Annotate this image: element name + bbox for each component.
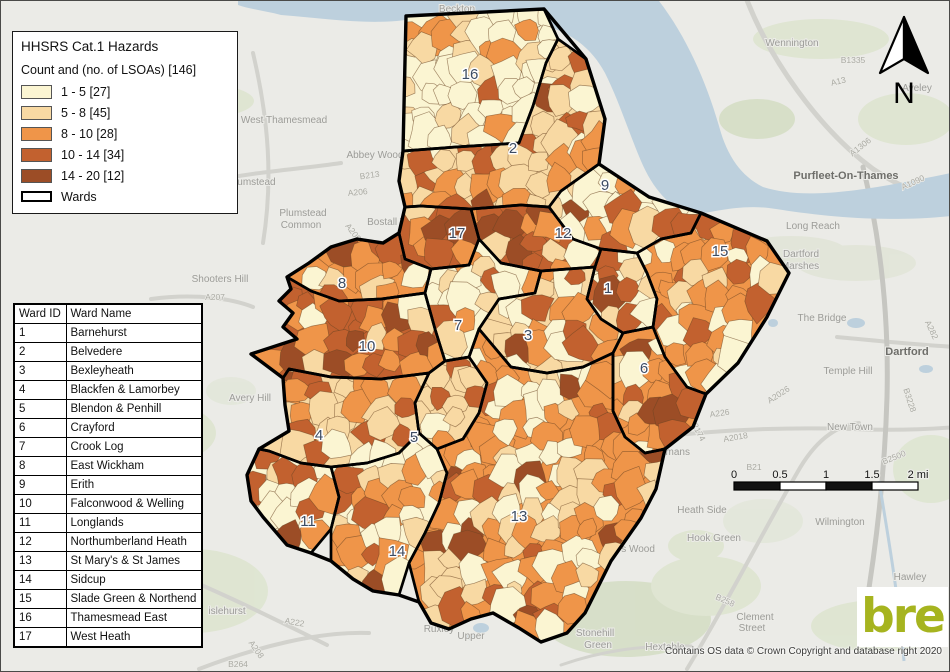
place-label: Abbey Wood — [346, 150, 403, 161]
lsoa-cell — [529, 152, 549, 172]
road-label: B1335 — [841, 55, 866, 65]
table-cell: Bexleyheath — [66, 362, 202, 381]
place-label: Common — [281, 220, 322, 231]
scale-bar-svg: 00.511.52 mi — [711, 467, 947, 497]
table-cell: Crayford — [66, 419, 202, 438]
table-header-cell: Ward ID — [14, 304, 66, 324]
scale-bar: 00.511.52 mi — [711, 467, 947, 497]
table-row: 17West Heath — [14, 628, 202, 648]
legend-swatch — [21, 127, 52, 141]
ward-number-label: 9 — [601, 177, 609, 194]
map-canvas: BecktonWenningtonAveleyWest ThamesmeadAb… — [0, 0, 950, 672]
ward-number-label: 7 — [454, 317, 462, 334]
legend-class-row: 1 - 5 [27] — [21, 81, 229, 102]
table-cell: Crook Log — [66, 438, 202, 457]
legend-swatch — [21, 85, 52, 99]
ward-number-label: 14 — [389, 543, 406, 560]
table-row: 10Falconwood & Welling — [14, 495, 202, 514]
table-cell: 11 — [14, 514, 66, 533]
place-label: Temple Hill — [824, 366, 873, 377]
table-row: 15Slade Green & Northend — [14, 590, 202, 609]
legend-class-label: 1 - 5 [27] — [61, 85, 110, 99]
table-row: 6Crayford — [14, 419, 202, 438]
legend-class-label: 8 - 10 [28] — [61, 127, 117, 141]
ward-number-label: 17 — [449, 225, 466, 242]
place-label: Wennington — [765, 38, 818, 49]
legend-class-row: 8 - 10 [28] — [21, 123, 229, 144]
table-row: 2Belvedere — [14, 343, 202, 362]
scale-bar-segment — [872, 482, 918, 490]
place-label: New Town — [827, 422, 873, 433]
place-label: The Bridge — [798, 313, 847, 324]
table-header-cell: Ward Name — [66, 304, 202, 324]
scale-bar-segment — [734, 482, 780, 490]
legend-wards-swatch — [21, 191, 52, 202]
table-cell: Barnehurst — [66, 324, 202, 343]
legend-class-row: 14 - 20 [12] — [21, 165, 229, 186]
table-row: 4Blackfen & Lamorbey — [14, 381, 202, 400]
table-cell: West Heath — [66, 628, 202, 648]
road-label: A207 — [205, 292, 225, 302]
ward-number-label: 6 — [640, 360, 648, 377]
ward-number-label: 13 — [511, 508, 528, 525]
table-row: 8East Wickham — [14, 457, 202, 476]
ward-number-label: 15 — [712, 243, 729, 260]
table-cell: East Wickham — [66, 457, 202, 476]
road-label: A206 — [347, 186, 368, 198]
bre-logo: bre — [857, 587, 948, 647]
table-cell: Blackfen & Lamorbey — [66, 381, 202, 400]
place-label: Dartford — [783, 249, 819, 260]
scale-bar-segment — [826, 482, 872, 490]
place-label: Hawley — [894, 572, 927, 583]
place-label: West Thamesmead — [241, 115, 327, 126]
ward-number-label: 1 — [604, 280, 612, 297]
table-cell: 10 — [14, 495, 66, 514]
table-cell: Northumberland Heath — [66, 533, 202, 552]
table-cell: 15 — [14, 590, 66, 609]
table-cell: 16 — [14, 609, 66, 628]
scale-label: 0 — [731, 469, 737, 481]
place-label: islehurst — [208, 606, 245, 617]
place-label: Upper — [457, 631, 485, 642]
scale-label: 1 — [823, 469, 829, 481]
table-cell: Longlands — [66, 514, 202, 533]
table-cell: 2 — [14, 343, 66, 362]
table-row: 3Bexleyheath — [14, 362, 202, 381]
table-cell: 7 — [14, 438, 66, 457]
scale-label: 1.5 — [864, 469, 879, 481]
scale-label: 2 mi — [908, 469, 929, 481]
place-label: Shooters Hill — [192, 274, 249, 285]
table-cell: Belvedere — [66, 343, 202, 362]
ward-number-label: 5 — [410, 429, 418, 446]
table-cell: 4 — [14, 381, 66, 400]
legend-swatch — [21, 169, 52, 183]
legend-wards-row: Wards — [21, 186, 229, 207]
legend-class-row: 10 - 14 [34] — [21, 144, 229, 165]
scale-bar-segment — [780, 482, 826, 490]
ward-number-label: 16 — [462, 66, 479, 83]
table-row: 9Erith — [14, 476, 202, 495]
place-label: Heath Side — [677, 505, 727, 516]
table-row: 5Blendon & Penhill — [14, 400, 202, 419]
table-row: 11Longlands — [14, 514, 202, 533]
table-cell: 5 — [14, 400, 66, 419]
table-cell: 6 — [14, 419, 66, 438]
ward-number-label: 10 — [359, 338, 376, 355]
road-label: B264 — [228, 659, 248, 669]
ward-number-label: 12 — [555, 225, 572, 242]
place-label: Dartford — [885, 346, 928, 358]
table-cell: 13 — [14, 552, 66, 571]
place-label: Street — [739, 623, 766, 634]
table-cell: Sidcup — [66, 571, 202, 590]
place-label: Hook Green — [687, 533, 741, 544]
table-cell: Falconwood & Welling — [66, 495, 202, 514]
place-label: Green — [584, 640, 612, 651]
table-cell: St Mary's & St James — [66, 552, 202, 571]
ward-number-label: 4 — [315, 427, 323, 444]
legend-class-label: 14 - 20 [12] — [61, 169, 124, 183]
legend-subtitle: Count and (no. of LSOAs) [146] — [21, 63, 229, 77]
table-cell: Erith — [66, 476, 202, 495]
ward-number-label: 8 — [338, 275, 346, 292]
table-row: 16Thamesmead East — [14, 609, 202, 628]
ward-number-label: 2 — [509, 140, 517, 157]
attribution-text: Contains OS data © Crown Copyright and d… — [665, 646, 942, 657]
legend-class-list: 1 - 5 [27]5 - 8 [45]8 - 10 [28]10 - 14 [… — [21, 81, 229, 186]
legend-swatch — [21, 148, 52, 162]
table-row: 14Sidcup — [14, 571, 202, 590]
table-row: 7Crook Log — [14, 438, 202, 457]
table-cell: 9 — [14, 476, 66, 495]
legend-wards-label: Wards — [61, 190, 97, 204]
table-cell: 12 — [14, 533, 66, 552]
ward-number-label: 3 — [524, 327, 532, 344]
legend-class-label: 5 - 8 [45] — [61, 106, 110, 120]
table-cell: Blendon & Penhill — [66, 400, 202, 419]
table-cell: 17 — [14, 628, 66, 648]
north-arrow: N — [874, 15, 934, 111]
place-label: Stonehill — [576, 628, 614, 639]
table-row: 12Northumberland Heath — [14, 533, 202, 552]
table-cell: Thamesmead East — [66, 609, 202, 628]
legend-swatch — [21, 106, 52, 120]
place-label: Clement — [736, 612, 773, 623]
table-cell: 3 — [14, 362, 66, 381]
north-label: N — [874, 79, 934, 109]
place-label: Long Reach — [786, 221, 840, 232]
place-label: Plumstead — [279, 208, 326, 219]
legend-title: HHSRS Cat.1 Hazards — [21, 39, 229, 54]
ward-number-label: 11 — [300, 513, 316, 530]
table-cell: 1 — [14, 324, 66, 343]
legend-class-row: 5 - 8 [45] — [21, 102, 229, 123]
north-arrow-icon — [874, 15, 934, 77]
ward-table: Ward IDWard Name 1Barnehurst2Belvedere3B… — [13, 303, 203, 648]
table-cell: 8 — [14, 457, 66, 476]
table-row: 1Barnehurst — [14, 324, 202, 343]
scale-label: 0.5 — [772, 469, 787, 481]
table-cell: Slade Green & Northend — [66, 590, 202, 609]
place-label: Purfleet-On-Thames — [793, 170, 898, 182]
place-label: Avery Hill — [229, 393, 271, 404]
legend-class-label: 10 - 14 [34] — [61, 148, 124, 162]
place-label: Wilmington — [815, 517, 864, 528]
table-row: 13St Mary's & St James — [14, 552, 202, 571]
logo-text: bre — [861, 592, 944, 642]
legend-panel: HHSRS Cat.1 Hazards Count and (no. of LS… — [12, 31, 238, 214]
table-cell: 14 — [14, 571, 66, 590]
